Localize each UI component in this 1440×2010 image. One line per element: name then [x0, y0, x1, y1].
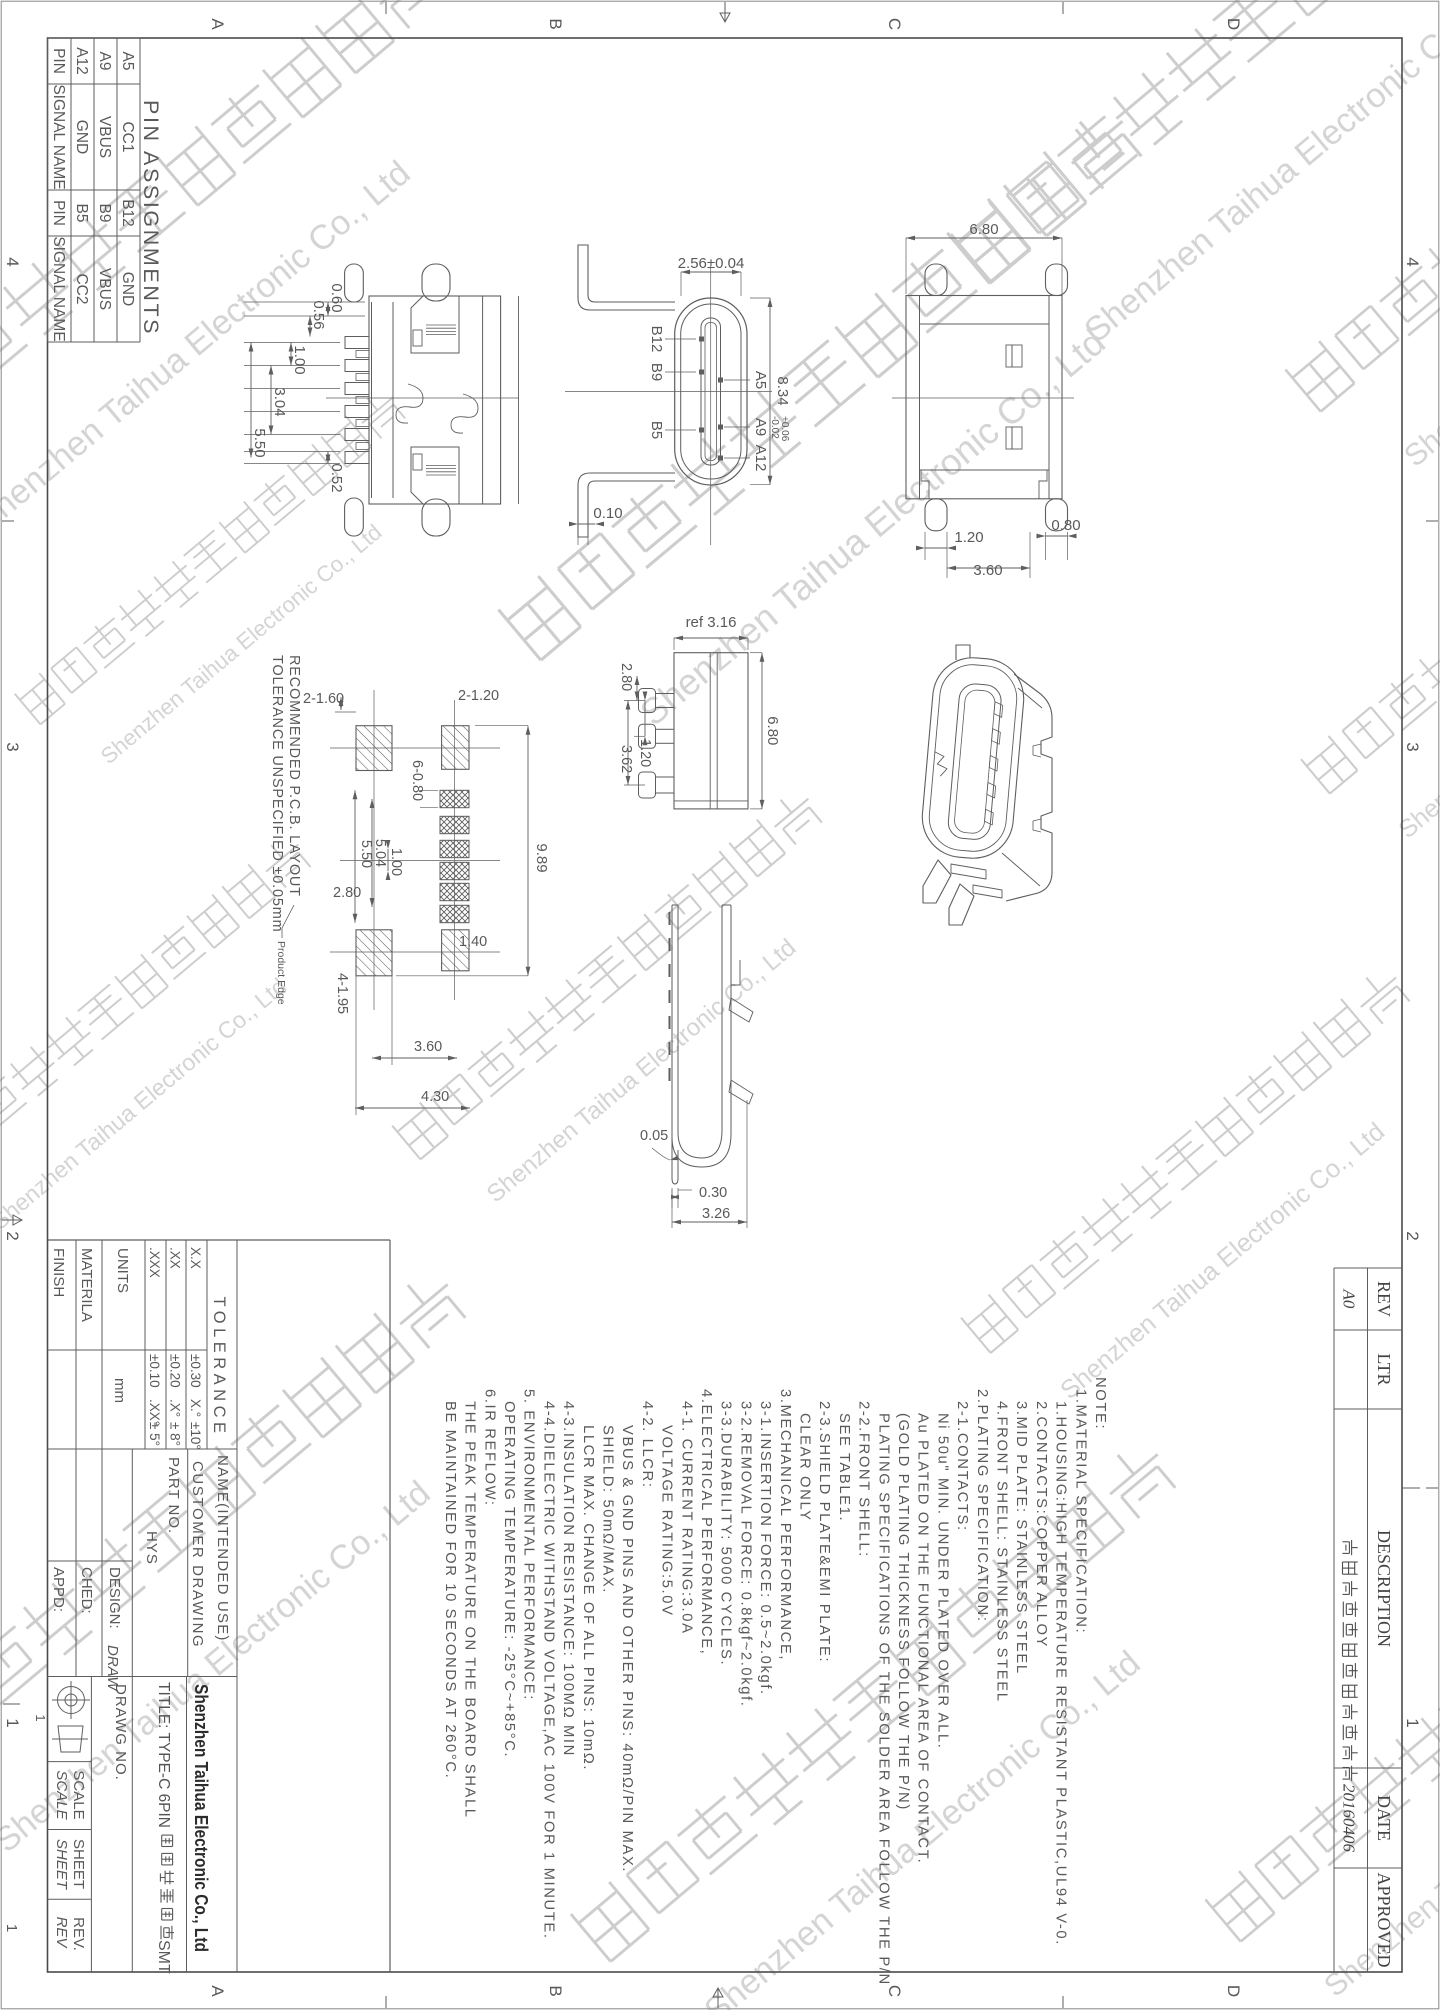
svg-text:CUSTOMER DRAWING: CUSTOMER DRAWING — [189, 1461, 206, 1648]
svg-text:-0.02: -0.02 — [769, 416, 780, 439]
svg-text:0.30: 0.30 — [699, 1185, 727, 1201]
svg-text:SHEET: SHEET — [53, 1839, 70, 1891]
svg-text:4-1. CURRENT RATING:3.0A: 4-1. CURRENT RATING:3.0A — [678, 1401, 694, 1635]
svg-text:4.ELECTRICAL PERFORMANCE,: 4.ELECTRICAL PERFORMANCE, — [698, 1389, 714, 1655]
svg-text:PIN: PIN — [50, 200, 67, 226]
svg-text:D: D — [1224, 1985, 1243, 1997]
svg-text:1.00: 1.00 — [388, 848, 404, 876]
svg-text:.XX: .XX — [168, 1247, 183, 1269]
svg-text:B9: B9 — [96, 204, 113, 223]
svg-text:BE MAINTAINED FOR 10 SECON: BE MAINTAINED FOR 10 SECONDS AT 260°C. — [442, 1401, 458, 1779]
svg-text:4.30: 4.30 — [421, 1089, 449, 1105]
svg-text:4-1.95: 4-1.95 — [334, 973, 350, 1014]
svg-text:B12: B12 — [648, 326, 665, 353]
svg-text:Shenzhen Taihua Electronic Co.: Shenzhen Taihua Electronic Co., Ltd — [191, 1684, 212, 1952]
svg-text:3.MECHANICAL PERFORMANCE,: 3.MECHANICAL PERFORMANCE, — [777, 1389, 793, 1661]
svg-text:PART NO.: PART NO. — [165, 1457, 182, 1534]
svg-text:NOTE:: NOTE: — [1092, 1377, 1108, 1430]
svg-text:3-2.REMOVAL FORCE: 0.8kgf~2.: 3-2.REMOVAL FORCE: 0.8kgf~2.0kgf. — [737, 1401, 753, 1708]
svg-text:8.34: 8.34 — [774, 376, 791, 405]
svg-text:REV: REV — [1374, 1281, 1394, 1317]
svg-text:LTR: LTR — [1374, 1353, 1394, 1385]
svg-text:0.10: 0.10 — [593, 505, 622, 522]
svg-text:2-1.20: 2-1.20 — [458, 688, 499, 704]
svg-text:A12: A12 — [73, 47, 90, 75]
svg-text:B9: B9 — [648, 363, 665, 381]
svg-text:A: A — [208, 18, 227, 30]
svg-text:DESIGN:: DESIGN: — [106, 1567, 123, 1629]
svg-text:A: A — [208, 1985, 227, 1997]
svg-text:2: 2 — [3, 1231, 22, 1240]
svg-text:±0.30: ±0.30 — [188, 1354, 203, 1388]
svg-text:TOLERANCE UNSPECIFIED ±0.05m: TOLERANCE UNSPECIFIED ±0.05mm — [269, 655, 285, 932]
svg-text:6.80: 6.80 — [969, 221, 998, 238]
svg-text:SMT: SMT — [155, 1940, 172, 1974]
svg-text:+0.06: +0.06 — [779, 416, 790, 442]
svg-text:SIGNAL NAME: SIGNAL NAME — [50, 236, 67, 341]
svg-text:APPROVED: APPROVED — [1374, 1872, 1394, 1967]
svg-text:A5: A5 — [119, 52, 136, 71]
svg-text:3-3.DURABILITY: 5000 CYCLES.: 3-3.DURABILITY: 5000 CYCLES. — [718, 1401, 734, 1666]
svg-text:OPERATING TEMPERATURE: -25°C: OPERATING TEMPERATURE: -25°C~+85°C. — [501, 1401, 517, 1758]
svg-text:A0: A0 — [1340, 1289, 1359, 1309]
svg-text:3.60: 3.60 — [973, 562, 1002, 579]
svg-text:TOLERANCE: TOLERANCE — [210, 1296, 228, 1437]
svg-text:3.MID PLATE: STAINLESS STEE: 3.MID PLATE: STAINLESS STEEL — [1013, 1401, 1029, 1675]
svg-text:2-3.SHIELD PLATE&EMI PLATE:: 2-3.SHIELD PLATE&EMI PLATE: — [816, 1401, 832, 1663]
svg-text:B5: B5 — [73, 204, 90, 223]
svg-text:9.89: 9.89 — [533, 843, 550, 872]
svg-text:CC1: CC1 — [119, 121, 136, 152]
svg-text:SCALE: SCALE — [70, 1770, 87, 1819]
svg-text:mm: mm — [111, 1378, 128, 1403]
svg-text:2.CONTACTS:COPPER ALLOY: 2.CONTACTS:COPPER ALLOY — [1033, 1401, 1049, 1648]
svg-text:Au PLATED ON THE FUNCTIONA: Au PLATED ON THE FUNCTIONAL AREA OF CONT… — [915, 1413, 931, 1864]
svg-text:6.IR REFLOW:: 6.IR REFLOW: — [481, 1389, 497, 1507]
svg-text:2.PLATING SPECIFICATION:: 2.PLATING SPECIFICATION: — [974, 1389, 990, 1623]
svg-text:0.60: 0.60 — [328, 283, 345, 312]
svg-text:VBUS: VBUS — [96, 268, 113, 310]
svg-text:4.FRONT SHELL: STAINLESS ST: 4.FRONT SHELL: STAINLESS STEEL — [994, 1401, 1010, 1703]
svg-text:2-1.CONTACTS:: 2-1.CONTACTS: — [954, 1401, 970, 1532]
svg-text:±0.10: ±0.10 — [147, 1354, 162, 1388]
svg-text:X.°: X.° — [188, 1399, 203, 1417]
svg-text:PLATING SPECIFICATIONS OF T: PLATING SPECIFICATIONS OF THE SOLDER ARE… — [875, 1413, 891, 1986]
svg-text:X.X: X.X — [188, 1247, 203, 1269]
svg-text:3.62: 3.62 — [618, 745, 634, 773]
svg-text:ref 3.16: ref 3.16 — [686, 614, 737, 631]
svg-text:SIGNAL NAME: SIGNAL NAME — [50, 84, 67, 189]
svg-text:0.56: 0.56 — [310, 300, 327, 329]
svg-text:5.04: 5.04 — [372, 839, 388, 867]
svg-text:GND: GND — [119, 272, 136, 306]
svg-text:1: 1 — [33, 1714, 48, 1721]
svg-text:A5: A5 — [752, 371, 769, 389]
svg-text:GND: GND — [73, 120, 90, 154]
svg-text:2-1.60: 2-1.60 — [303, 691, 344, 707]
svg-text:0.05: 0.05 — [640, 1128, 668, 1144]
svg-text:VOLTAGE RATING:5.0V: VOLTAGE RATING:5.0V — [659, 1425, 675, 1617]
svg-text:A12: A12 — [752, 445, 769, 472]
svg-text:Product Edge: Product Edge — [275, 941, 287, 1005]
svg-text:CLEAR ONLY: CLEAR ONLY — [797, 1413, 813, 1522]
svg-text:1: 1 — [3, 1924, 20, 1932]
svg-text:.XXX: .XXX — [147, 1247, 162, 1278]
svg-text:20160406: 20160406 — [1340, 1784, 1359, 1853]
svg-text:SEE TABLE1.: SEE TABLE1. — [836, 1413, 852, 1522]
svg-text:REV.: REV. — [70, 1917, 87, 1951]
svg-text:4-3.INSULATION RESISTANCE: 1: 4-3.INSULATION RESISTANCE: 100MΩ MIN — [560, 1401, 576, 1757]
svg-text:HYS: HYS — [143, 1531, 160, 1565]
svg-text:6-0.80: 6-0.80 — [409, 760, 425, 801]
svg-text:PIN ASSIGNMENTS: PIN ASSIGNMENTS — [139, 100, 163, 336]
svg-text:6.80: 6.80 — [764, 716, 781, 745]
svg-text:C: C — [885, 1985, 904, 1997]
svg-text:LLCR MAX. CHANGE OF ALL P: LLCR MAX. CHANGE OF ALL PINS: 10mΩ. — [580, 1425, 596, 1771]
svg-text:Ni 50u" MIN. UNDER PLATED: Ni 50u" MIN. UNDER PLATED OVER ALL. — [934, 1413, 950, 1749]
svg-text:3.04: 3.04 — [271, 387, 288, 416]
svg-text:SCALE: SCALE — [53, 1770, 70, 1820]
svg-text:0.80: 0.80 — [1051, 517, 1080, 534]
svg-text:VBUS: VBUS — [96, 116, 113, 158]
svg-text:4: 4 — [3, 257, 22, 266]
svg-text:B: B — [546, 18, 565, 29]
svg-text:PIN: PIN — [50, 48, 67, 74]
svg-text:3: 3 — [1403, 742, 1422, 751]
svg-text:1: 1 — [1403, 1718, 1422, 1727]
svg-text:B5: B5 — [648, 421, 665, 439]
svg-text:VBUS & GND PINS AND OTHER: VBUS & GND PINS AND OTHER PINS: 40mΩ/PIN… — [619, 1425, 635, 1873]
svg-text:1: 1 — [3, 1718, 22, 1727]
svg-text:4-2. LLCR:: 4-2. LLCR: — [639, 1401, 655, 1489]
svg-text:.X°: .X° — [168, 1399, 183, 1417]
svg-text:± 5°: ± 5° — [147, 1422, 162, 1446]
svg-text:1.20: 1.20 — [954, 529, 983, 546]
svg-text:1.MATERIAL SPECIFICATION:: 1.MATERIAL SPECIFICATION: — [1072, 1389, 1088, 1634]
svg-text:±10°: ±10° — [188, 1422, 203, 1450]
svg-text:SHIELD: 50mΩ/MAX.: SHIELD: 50mΩ/MAX. — [600, 1425, 616, 1594]
svg-text:3.60: 3.60 — [414, 1039, 442, 1055]
svg-text:NAME(INTENDED USE): NAME(INTENDED USE) — [214, 1455, 231, 1642]
svg-text:MATERILA: MATERILA — [78, 1248, 95, 1322]
svg-text:3.26: 3.26 — [702, 1206, 730, 1222]
svg-text:2.56±0.04: 2.56±0.04 — [678, 255, 745, 272]
svg-text:DATE: DATE — [1374, 1795, 1394, 1841]
svg-text:2.80: 2.80 — [333, 885, 361, 901]
svg-text:4: 4 — [1403, 257, 1422, 266]
svg-text:CHED:: CHED: — [78, 1567, 95, 1614]
svg-text:5.50: 5.50 — [251, 428, 268, 457]
svg-text:1.00: 1.00 — [291, 345, 308, 374]
svg-text:UNITS: UNITS — [114, 1248, 131, 1293]
svg-text:CC2: CC2 — [73, 273, 90, 304]
svg-text:4-4.DIELECTRIC WITHSTAND VOL: 4-4.DIELECTRIC WITHSTAND VOLTAGE,AC 100V… — [540, 1401, 556, 1940]
svg-text:FINISH: FINISH — [50, 1248, 67, 1297]
svg-text:2: 2 — [1403, 1231, 1422, 1240]
svg-text:(GOLD PLATING THICKNESS FOL: (GOLD PLATING THICKNESS FOLLOW THE P/N) — [895, 1413, 911, 1811]
svg-text:DRAWG NO.: DRAWG NO. — [112, 1684, 129, 1781]
svg-text:1.HOUSING:HIGH TEMPERATURE R: 1.HOUSING:HIGH TEMPERATURE RESISTANT PLA… — [1053, 1401, 1069, 1946]
svg-text:±0.20: ±0.20 — [168, 1354, 183, 1388]
svg-text:5. ENVIRONMENTAL PERFORMANCE: 5. ENVIRONMENTAL PERFORMANCE: — [521, 1389, 537, 1701]
svg-text:D: D — [1224, 18, 1243, 30]
svg-text:B: B — [546, 1985, 565, 1996]
svg-text:B12: B12 — [119, 199, 136, 227]
svg-text:THE PEAK TEMPERATURE ON TH: THE PEAK TEMPERATURE ON THE BOARD SHALL — [462, 1401, 478, 1819]
svg-text:3: 3 — [3, 742, 22, 751]
svg-text:DESCRIPTION: DESCRIPTION — [1374, 1530, 1394, 1647]
svg-text:TITLE: TYPE-C 6PIN: TITLE: TYPE-C 6PIN — [155, 1682, 172, 1828]
svg-text:0.52: 0.52 — [328, 463, 345, 492]
svg-text:± 8°: ± 8° — [168, 1422, 183, 1446]
svg-text:A9: A9 — [96, 52, 113, 71]
svg-text:2-2.FRONT SHELL:: 2-2.FRONT SHELL: — [856, 1401, 872, 1558]
svg-text:REV: REV — [53, 1917, 70, 1950]
svg-text:A9: A9 — [752, 418, 769, 436]
svg-text:C: C — [885, 18, 904, 30]
svg-text:APPD:: APPD: — [50, 1567, 67, 1612]
svg-text:1.40: 1.40 — [459, 934, 487, 950]
svg-text:SHEET: SHEET — [70, 1839, 87, 1889]
svg-text:2.80: 2.80 — [618, 663, 634, 691]
svg-text:RECOMMENDED P.C.B. LAYOUT: RECOMMENDED P.C.B. LAYOUT — [286, 655, 302, 897]
svg-text:3-1.INSERTION FORCE: 0.5~2.0: 3-1.INSERTION FORCE: 0.5~2.0kgf. — [757, 1401, 773, 1696]
